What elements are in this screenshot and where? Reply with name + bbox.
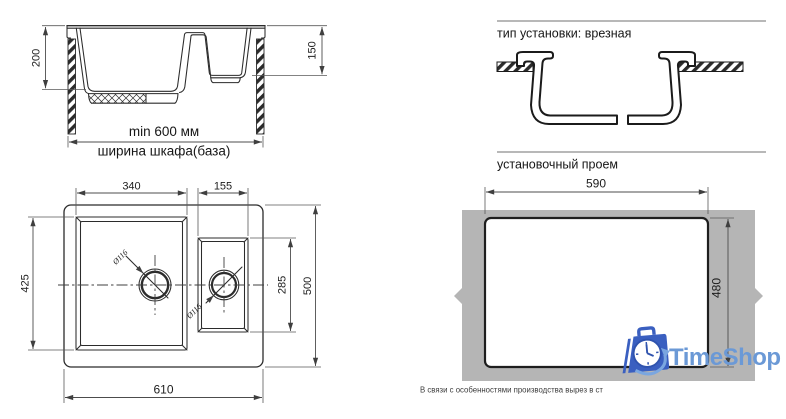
sink-flange-profile-left xyxy=(517,52,617,124)
cabinet-wall-right-hatch xyxy=(257,39,265,134)
dim-depth-main-value: 200 xyxy=(31,49,43,67)
dim-cabinet-width: min 600 мм ширина шкафа(база) xyxy=(68,124,263,159)
dim-total-depth-value: 500 xyxy=(302,277,314,295)
centerlines xyxy=(58,255,268,315)
installation-type-title: тип установки: врезная xyxy=(497,27,631,41)
timeshop-logo-text: TimeShop xyxy=(669,344,781,371)
bowl-bottom-crosshatch xyxy=(89,94,147,104)
dim-main-bowl-width-value: 340 xyxy=(122,181,140,193)
dim-total-width-value: 610 xyxy=(153,383,173,397)
production-footnote: В связи с особенностями производства выр… xyxy=(420,386,603,395)
sink-rim-section xyxy=(67,26,265,38)
dim-depth-small-value: 150 xyxy=(307,41,319,59)
dim-opening-width-value: 590 xyxy=(586,177,606,191)
cabinet-wall-left-hatch xyxy=(68,39,76,134)
side-view-drawing: 200 150 min 600 мм ширина шкафа(база) xyxy=(31,26,328,159)
main-drain: Ø116 xyxy=(110,248,171,301)
drawing-svg: 200 150 min 600 мм ширина шкафа(база) xyxy=(0,0,786,419)
dim-opening-height-value: 480 xyxy=(710,278,724,298)
opening-title: установочный проем xyxy=(497,158,618,172)
dim-main-bowl-depth: 425 xyxy=(20,217,75,350)
top-view-drawing: Ø116 Ø116 340 155 xyxy=(20,181,322,404)
small-bowl-section xyxy=(211,28,251,82)
dim-main-bowl-width: 340 xyxy=(76,181,187,216)
dim-total-depth: 500 xyxy=(265,205,321,367)
dim-small-bowl-depth-value: 285 xyxy=(277,276,289,294)
sink-installation-drawing: 200 150 min 600 мм ширина шкафа(база) xyxy=(0,0,786,419)
countertop-hatch-right xyxy=(677,62,743,72)
dim-small-bowl-width: 155 xyxy=(198,181,248,237)
main-bowl-plan xyxy=(76,217,187,350)
dim-small-bowl-width-value: 155 xyxy=(214,181,232,193)
main-drain-diameter-label: Ø116 xyxy=(110,248,129,267)
sink-outline-plan xyxy=(64,205,263,367)
small-drain: Ø116 xyxy=(184,267,242,321)
countertop-hatch-left xyxy=(497,62,533,72)
cabinet-width-label: ширина шкафа(база) xyxy=(98,144,231,159)
dim-main-bowl-depth-value: 425 xyxy=(20,274,32,292)
main-bowl-section xyxy=(76,28,247,103)
min-width-label: min 600 мм xyxy=(129,124,199,139)
dim-opening-width: 590 xyxy=(485,177,708,215)
installation-type-section: тип установки: врезная xyxy=(497,21,766,124)
dim-total-width: 610 xyxy=(64,369,263,403)
